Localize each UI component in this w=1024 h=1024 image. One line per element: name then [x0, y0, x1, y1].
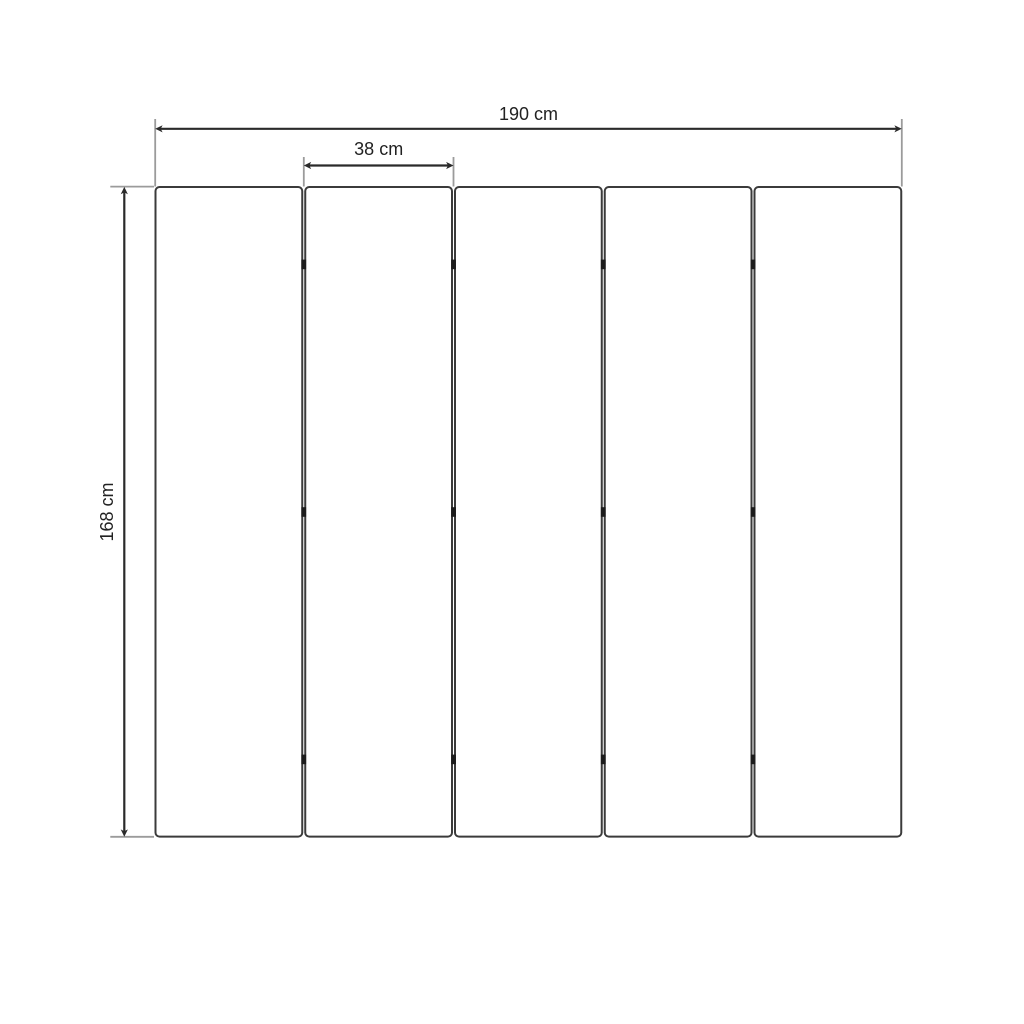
svg-text:38 cm: 38 cm — [354, 139, 403, 159]
svg-text:168 cm: 168 cm — [97, 482, 117, 541]
svg-text:190 cm: 190 cm — [499, 104, 558, 124]
